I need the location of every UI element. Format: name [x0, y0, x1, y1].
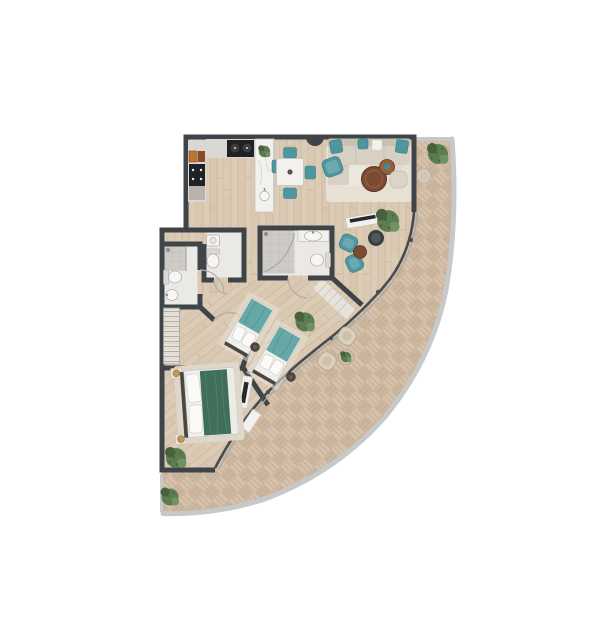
bath2-basin — [210, 237, 216, 243]
master-bedroom-furniture — [170, 362, 244, 445]
sofa-white-pillow — [372, 140, 382, 150]
sofa-teal-pillow — [395, 139, 409, 154]
bath1-toilet — [169, 271, 182, 283]
bedside-lamp — [173, 370, 180, 377]
sofa-teal-pillow — [329, 139, 343, 154]
bath1-tap — [166, 294, 168, 296]
island-sink — [260, 191, 270, 201]
pouf — [390, 171, 407, 188]
wardrobe — [164, 308, 180, 364]
glass-mullion — [376, 290, 380, 294]
burner-dot — [234, 147, 236, 149]
bedside-lamp — [177, 435, 184, 442]
bath1-toilet-tank — [164, 270, 169, 284]
sofa-teal-pillow — [358, 139, 368, 149]
glass-mullion — [329, 336, 333, 340]
dark-lounge-chair-seat — [371, 233, 381, 243]
bath3-toilet — [311, 254, 324, 266]
dining-chair-right — [305, 166, 316, 179]
bath3-toilet-tank — [326, 253, 331, 267]
cooktop — [189, 164, 205, 186]
glass-mullion — [266, 390, 270, 394]
teal-bowl — [384, 164, 390, 170]
terrace-side-table-top — [420, 172, 429, 181]
dining-chair-top — [284, 148, 297, 159]
bath1-shower-head — [166, 248, 170, 252]
bath2-toilet — [207, 254, 219, 268]
bath2-toilet-tank — [207, 249, 220, 254]
oven-2 — [198, 151, 206, 162]
counter-end — [189, 186, 205, 200]
floor-plan-svg — [0, 0, 604, 640]
reading-side-table — [354, 246, 367, 259]
oven — [189, 151, 197, 162]
bathroom-3-shower-tiles — [263, 231, 295, 274]
bath3-tap — [312, 231, 314, 233]
round-stool-top — [253, 345, 257, 349]
burner-dot — [246, 147, 248, 149]
floor-plan-page — [0, 0, 604, 640]
glass-mullion — [409, 238, 413, 242]
dining-chair-bottom — [284, 188, 297, 199]
bath3-shower-head — [264, 232, 268, 236]
master-pillow — [189, 405, 202, 433]
table-centerpiece — [287, 169, 292, 174]
round-stool-top — [289, 375, 293, 379]
